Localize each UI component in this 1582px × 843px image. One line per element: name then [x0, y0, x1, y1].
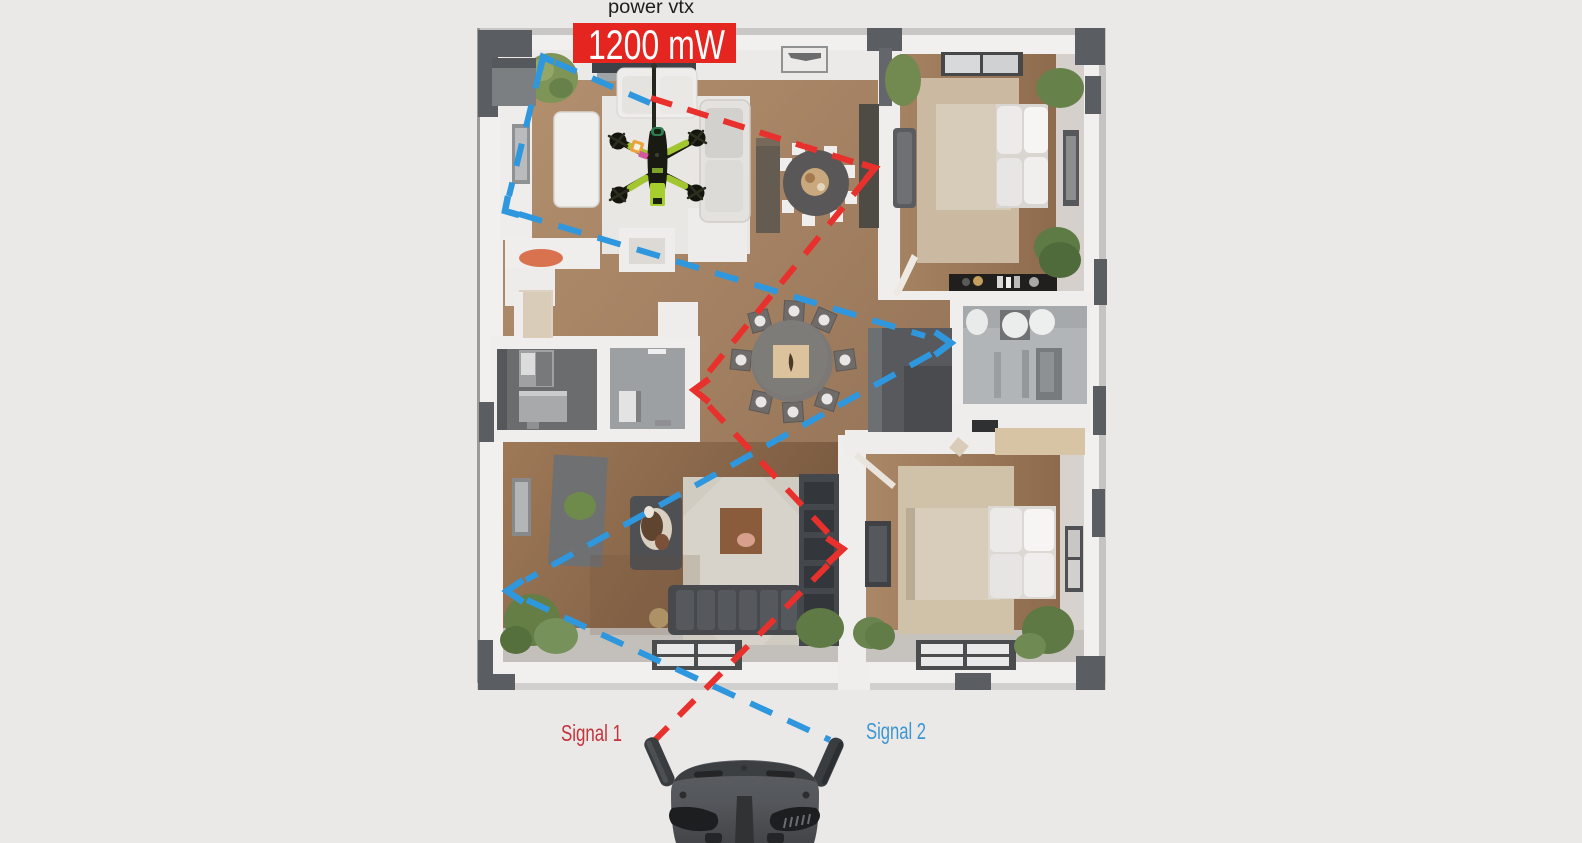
svg-text:Signal 1: Signal 1 — [561, 720, 622, 746]
svg-text:1200 mW: 1200 mW — [588, 21, 725, 68]
svg-text:Signal 2: Signal 2 — [866, 718, 926, 744]
svg-text:power vtx: power vtx — [608, 0, 695, 18]
